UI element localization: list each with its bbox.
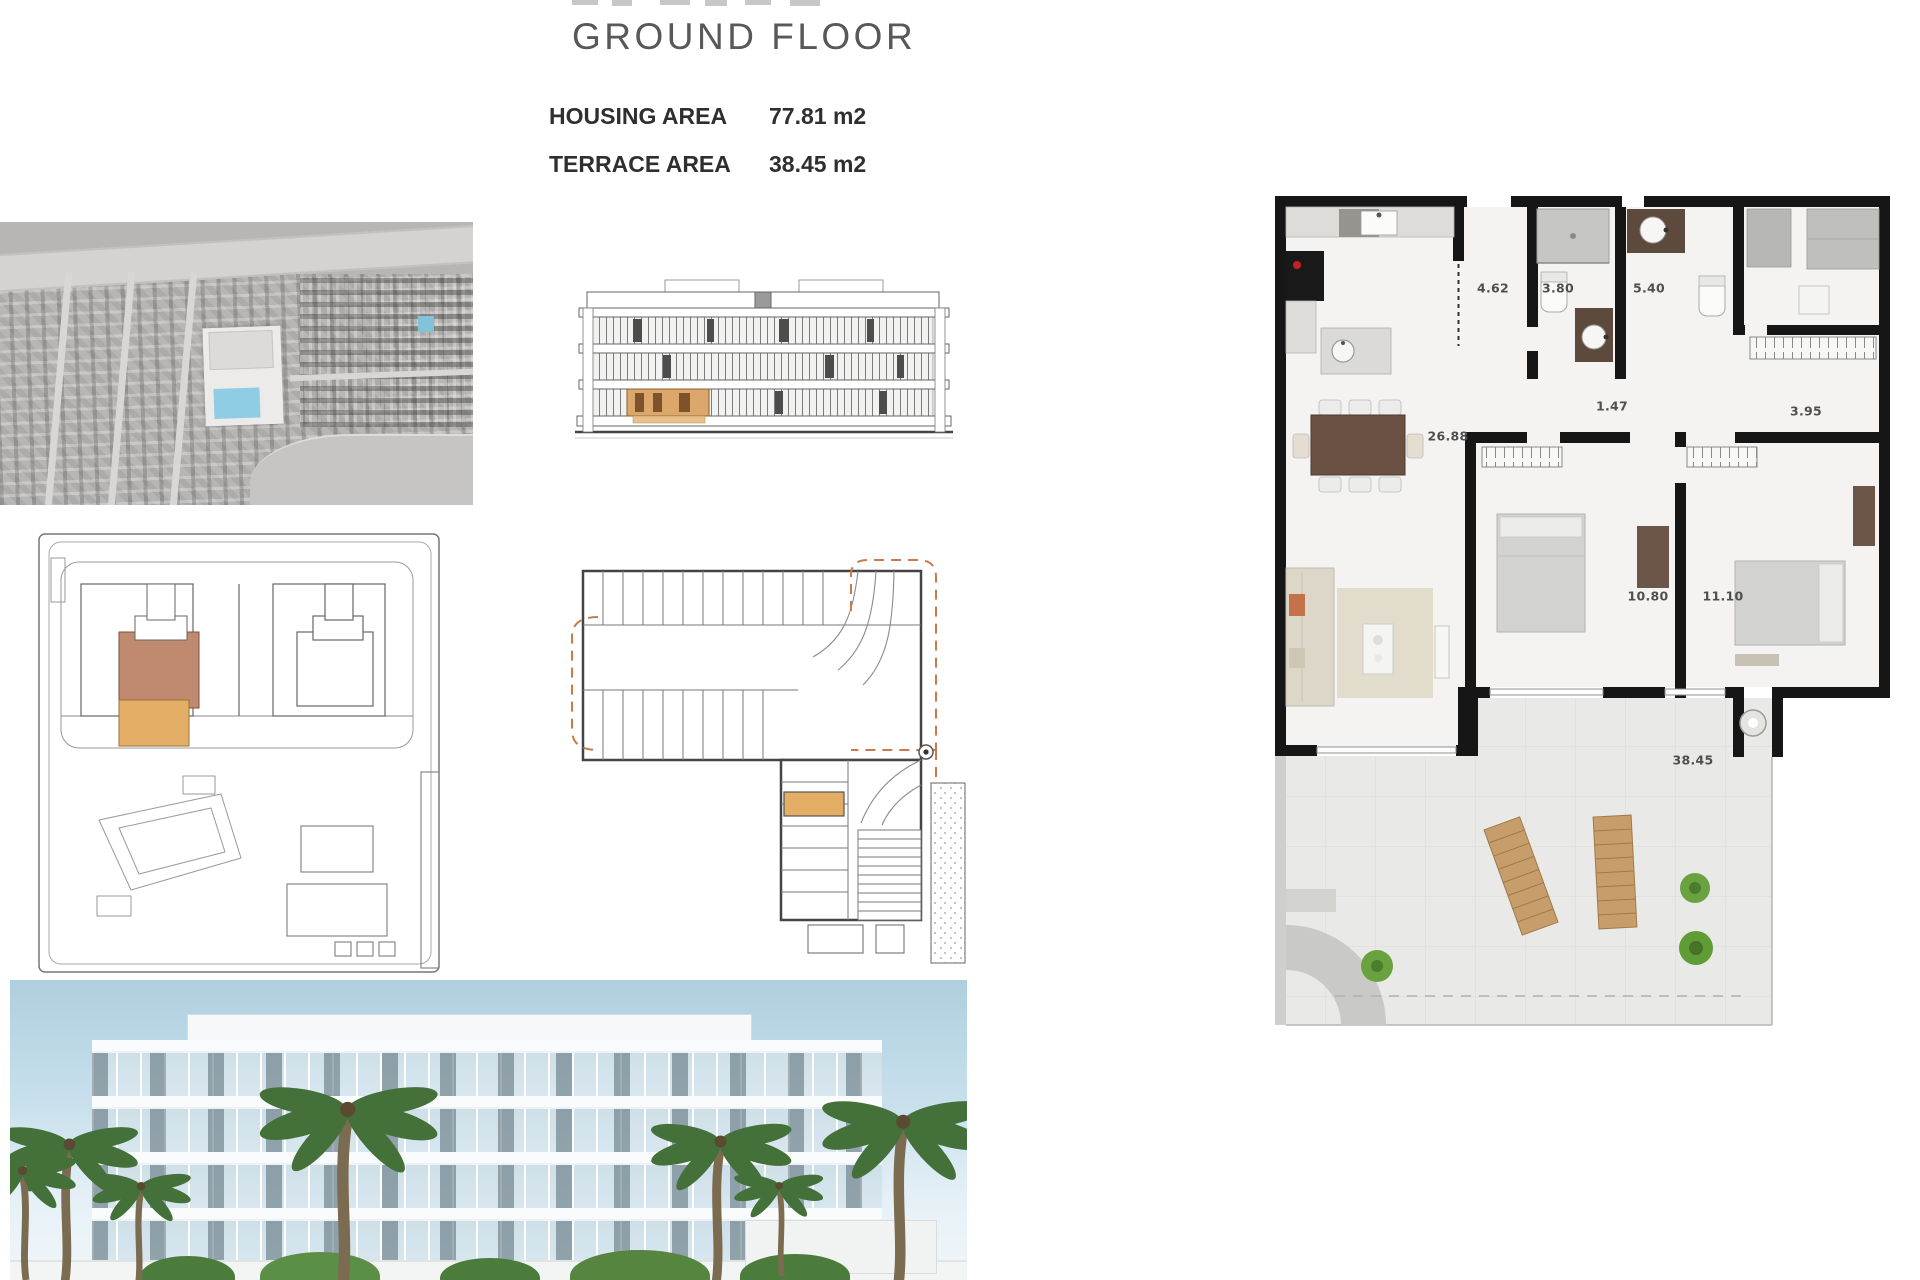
page-title: GROUND FLOOR <box>572 16 916 58</box>
right-building-footprint <box>273 584 385 716</box>
highlighted-storage-room <box>784 792 844 816</box>
room-area-label-corridor: 1.47 <box>1596 399 1628 414</box>
room-area-label-terrace: 38.45 <box>1672 753 1713 768</box>
apartment-floor-plan: 4.62 3.80 5.40 1.47 3.95 26.88 10.80 11.… <box>1275 196 1890 1031</box>
apartment-plan-drawing <box>1275 196 1890 1031</box>
housing-area-value: 77.81 m2 <box>769 103 866 130</box>
building-exterior-render <box>10 980 967 1280</box>
potted-plant <box>1361 950 1393 982</box>
brochure-page: GROUND FLOOR HOUSING AREA 77.81 m2 TERRA… <box>0 0 1920 1280</box>
site-plan-drawing <box>35 528 445 978</box>
potted-plant <box>1679 931 1713 965</box>
housing-area-row: HOUSING AREA 77.81 m2 <box>549 103 727 130</box>
neighbour-pool <box>418 316 434 332</box>
palm-trees <box>10 980 967 1280</box>
housing-area-label: HOUSING AREA <box>549 103 727 129</box>
room-area-label-bathroom2: 5.40 <box>1633 281 1665 296</box>
plot-building-roof <box>208 330 273 370</box>
terrace-area-label: TERRACE AREA <box>549 151 731 177</box>
living-room-group <box>1286 568 1449 706</box>
room-area-label-bathroom1: 3.80 <box>1542 281 1574 296</box>
room-area-label-bedroom2: 11.10 <box>1702 589 1743 604</box>
stairs <box>858 830 921 920</box>
plot-pool <box>213 387 260 419</box>
room-area-label-hall: 4.62 <box>1477 281 1509 296</box>
terrace-area-row: TERRACE AREA 38.45 m2 <box>549 151 731 178</box>
cropped-text-fragment <box>570 0 870 7</box>
room-area-label-bedroom1: 10.80 <box>1627 589 1668 604</box>
highlighted-unit <box>627 389 709 423</box>
room-area-label-wardrobe: 3.95 <box>1790 404 1822 419</box>
dense-blocks <box>300 277 473 427</box>
sun-lounger <box>1593 815 1637 929</box>
aerial-site-photo <box>0 222 473 505</box>
floor-plan-overview-drawing <box>558 545 978 975</box>
room-area-label-living: 26.88 <box>1427 429 1468 444</box>
terrace-area-value: 38.45 m2 <box>769 151 866 178</box>
highlighted-plot <box>202 326 283 427</box>
potted-plant <box>1680 873 1710 903</box>
building-front-elevation <box>575 272 953 448</box>
